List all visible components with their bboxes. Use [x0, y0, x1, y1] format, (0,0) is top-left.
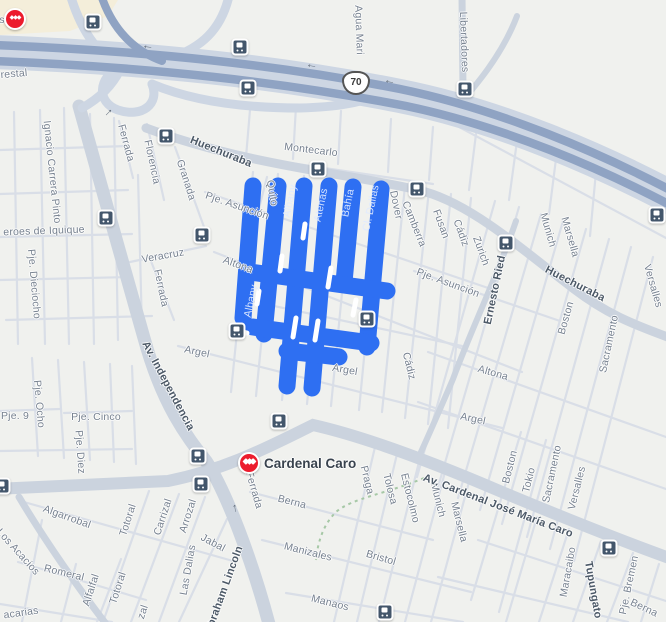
traffic-direction-arrow-icon: ←: [141, 37, 155, 53]
bus-stop-icon[interactable]: [190, 448, 207, 465]
street-label: Agua Mari: [352, 5, 366, 55]
traffic-direction-arrow-icon: ←: [229, 501, 245, 515]
metro-logo-icon: [238, 452, 260, 474]
bus-stop-icon[interactable]: [158, 128, 175, 145]
bus-stop-icon[interactable]: [601, 540, 618, 557]
street-label: Pje. Cinco: [71, 411, 121, 423]
bus-stop-icon[interactable]: [498, 235, 515, 252]
metro-station-label[interactable]: Cardenal Caro: [238, 452, 356, 474]
street-label: restal: [0, 67, 28, 81]
map-canvas[interactable]: srestalAgua MariLibertadoresIgnacio Carr…: [0, 0, 666, 622]
bus-stop-icon[interactable]: [229, 323, 246, 340]
bus-stop-icon[interactable]: [409, 181, 426, 198]
bus-stop-icon[interactable]: [232, 39, 249, 56]
street-label: Pje. 9: [1, 410, 29, 422]
bus-stop-icon[interactable]: [194, 227, 211, 244]
bus-stop-icon[interactable]: [649, 207, 666, 224]
bus-stop-icon[interactable]: [457, 81, 474, 98]
bus-stop-icon[interactable]: [359, 311, 376, 328]
bus-stop-icon[interactable]: [85, 14, 102, 31]
bus-stop-icon[interactable]: [271, 413, 288, 430]
traffic-direction-arrow-icon: ←: [305, 56, 319, 72]
bus-stop-icon[interactable]: [98, 210, 115, 227]
bus-stop-icon[interactable]: [0, 478, 11, 495]
station-name: Cardenal Caro: [264, 456, 356, 471]
bus-stop-icon[interactable]: [377, 604, 394, 621]
bus-stop-icon[interactable]: [240, 80, 257, 97]
street-label: Libertadores: [457, 11, 471, 72]
metro-logo-icon[interactable]: [4, 8, 26, 30]
bus-stop-icon[interactable]: [193, 476, 210, 493]
bus-stop-icon[interactable]: [310, 161, 327, 178]
